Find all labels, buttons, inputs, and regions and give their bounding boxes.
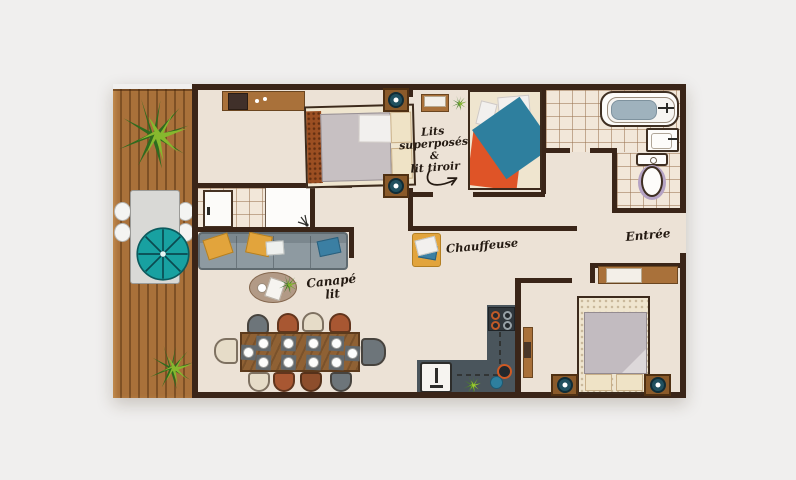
place-setting: [329, 355, 345, 371]
wall-kidsroom-bottom-right: [473, 192, 545, 197]
plant-icon: [116, 92, 190, 174]
toilet-tank-button: [650, 157, 657, 164]
arrow-icon: [422, 166, 470, 194]
wall-outer-left: [192, 84, 198, 398]
place-setting: [256, 355, 272, 371]
wall-living-top: [192, 227, 353, 232]
sofa-seam: [236, 236, 237, 268]
wall-bathroom-bottom-left: [541, 148, 570, 153]
place-setting: [345, 346, 361, 362]
wall-hallway: [408, 226, 577, 231]
dining-chair: [361, 338, 386, 366]
toilet-bowl-inner: [641, 166, 663, 197]
nightstand: [383, 174, 409, 198]
bedroom1-console-dot: [255, 99, 259, 103]
plant-icon: [278, 273, 298, 295]
wall-showerroom-right: [310, 185, 315, 232]
wall-wc-bottom: [612, 208, 683, 213]
bathtub: [600, 91, 679, 127]
kitchen-sink-drain: [430, 385, 443, 388]
dining-chair: [277, 313, 299, 333]
burner-icon: [503, 311, 512, 320]
plant-icon: [451, 94, 467, 112]
plate: [308, 338, 320, 350]
nightstand: [383, 88, 409, 112]
plate: [347, 348, 359, 360]
wall-wc-left: [612, 148, 617, 213]
kitchen-faucet-icon: [435, 368, 438, 383]
toilet: [634, 153, 670, 201]
sofa-cushion-white: [266, 240, 285, 255]
wall-outer-right-upper: [680, 84, 686, 213]
bed-pillow: [616, 374, 643, 391]
door-handle-icon: [207, 207, 210, 215]
plate: [331, 357, 343, 369]
bed-pillow: [585, 374, 612, 391]
bathtub-faucet-icon: [666, 103, 668, 113]
apartment-floor-plan: Lits superposés & lit tiroir: [0, 0, 796, 480]
plate: [331, 338, 343, 350]
place-setting: [306, 336, 322, 352]
bedroom2-closet-box: [606, 268, 642, 283]
burner-icon: [491, 311, 500, 320]
wall-outer-top: [192, 84, 686, 90]
wall-kitchen-right: [515, 278, 521, 398]
bedroom1-console-tray: [228, 93, 248, 110]
shower-head-icon: [294, 212, 310, 228]
dining-chair: [214, 338, 238, 364]
place-setting: [256, 336, 272, 352]
wall-living-stub: [349, 227, 354, 258]
plate: [283, 357, 295, 369]
plate: [243, 347, 255, 359]
sink-faucet-icon: [668, 138, 677, 140]
bed-pillow: [358, 114, 392, 142]
lamp-icon: [557, 377, 573, 393]
plate: [283, 338, 295, 350]
dining-chair: [247, 314, 269, 334]
nightstand: [644, 374, 671, 396]
kids-bunk-bed: [468, 90, 542, 190]
bed-duvet-fold: [622, 349, 646, 373]
sink-basin: [651, 133, 672, 149]
dining-chair: [302, 312, 324, 332]
place-setting: [281, 336, 297, 352]
bathtub-body: [611, 100, 657, 120]
dining-chair: [329, 313, 351, 333]
place-setting: [281, 355, 297, 371]
plate: [258, 357, 270, 369]
bedroom1-console-dot: [263, 97, 267, 101]
place-setting: [306, 355, 322, 371]
bathroom-sink: [646, 128, 679, 152]
place-setting: [241, 345, 257, 361]
bedroom2-wardrobe-box: [524, 342, 531, 358]
lamp-icon: [388, 92, 404, 108]
bedroom2-double-bed: [577, 296, 650, 394]
dish-icon: [490, 376, 503, 389]
deck-chair: [114, 223, 131, 242]
wall-outer-right-lower: [680, 253, 686, 398]
sofa-seam: [310, 236, 311, 268]
plant-icon: [148, 338, 194, 396]
lamp-icon: [650, 377, 666, 393]
plate: [258, 338, 270, 350]
plate: [308, 357, 320, 369]
shower-room-door: [203, 190, 233, 228]
parasol-icon: [135, 226, 191, 282]
bed-mattress: [584, 312, 647, 374]
deck-chair: [114, 202, 131, 221]
kids-desk-paper: [424, 96, 446, 107]
wall-bedroom2-top-left: [515, 278, 572, 283]
place-setting: [329, 336, 345, 352]
nightstand: [551, 374, 578, 396]
lamp-icon: [388, 178, 404, 194]
